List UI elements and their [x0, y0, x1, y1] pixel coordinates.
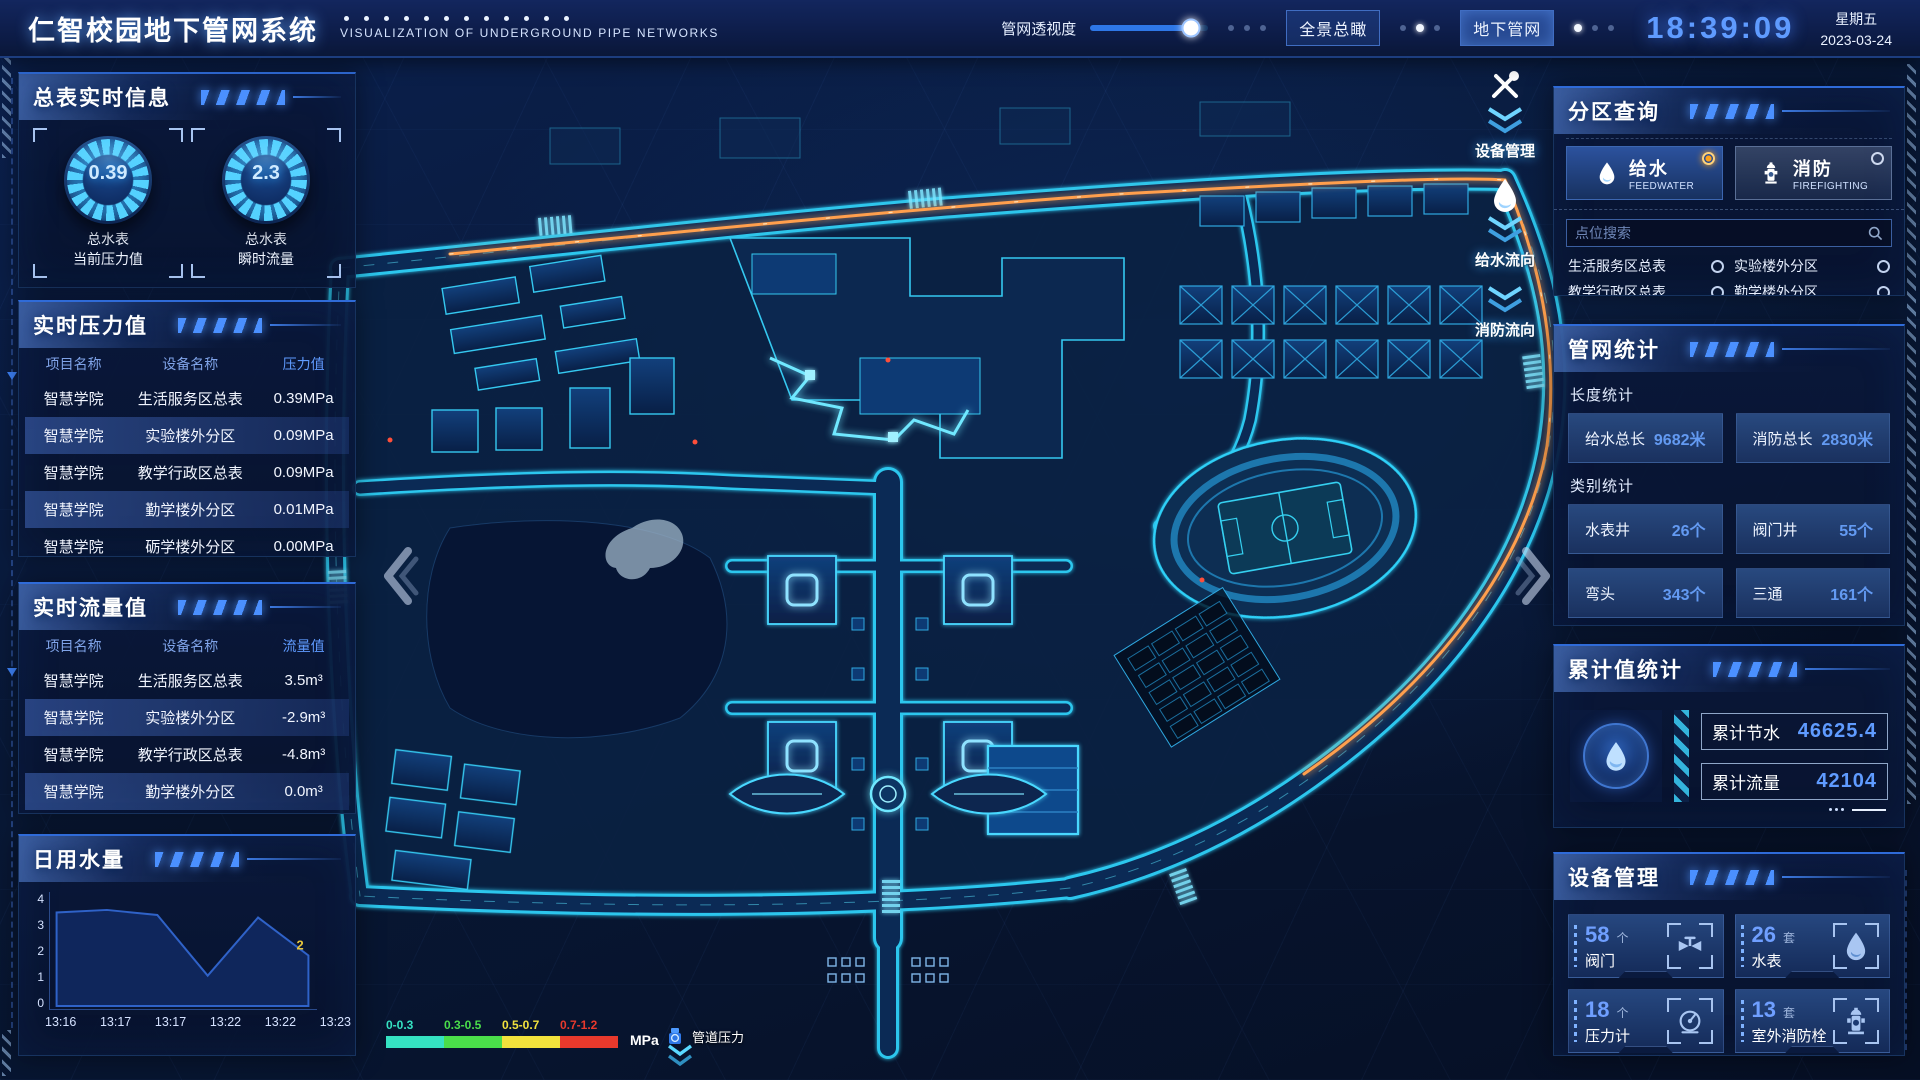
device-info: 13套室外消防栓 [1752, 997, 1827, 1046]
x-tick: 13:23 [320, 1015, 351, 1029]
y-tick: 2 [37, 944, 44, 958]
panel-title: 设备管理 [1568, 862, 1660, 892]
column-header: 设备名称 [122, 354, 258, 374]
tool-label: 设备管理 [1475, 140, 1535, 161]
slashes-decoration [178, 600, 262, 615]
device-unit: 套 [1783, 929, 1795, 946]
gauge-dial: 2.3 [222, 136, 310, 224]
y-tick: 4 [37, 892, 44, 906]
edge-marker [7, 668, 17, 676]
stat-box: 弯头343个 [1568, 568, 1723, 618]
device-count: 13 [1752, 997, 1776, 1023]
pressure-legend: 0-0.30.3-0.50.5-0.70.7-1.2MPa [386, 1018, 659, 1048]
map-next-arrow[interactable] [1514, 545, 1556, 607]
zone-list-item[interactable]: 教学行政区总表 [1568, 279, 1724, 296]
zone-label: 教学行政区总表 [1568, 282, 1666, 296]
stat-value: 343个 [1663, 581, 1706, 605]
device-unit: 套 [1783, 1004, 1795, 1021]
device-card-阀门[interactable]: 58个阀门 [1568, 914, 1724, 978]
outdoor-hydrant-icon [1833, 998, 1879, 1044]
zone-label: 生活服务区总表 [1568, 256, 1666, 276]
table-cell: 3.5m³ [258, 672, 349, 689]
campus-map-svg [300, 58, 1570, 1080]
length-stats-label: 长度统计 [1554, 372, 1904, 413]
table-row[interactable]: 智慧学院教学行政区总表0.09MPa [25, 454, 349, 491]
stat-box: 消防总长2830米 [1736, 413, 1891, 463]
panel-daily-usage: 日用水量 43210 2 13:1613:1713:1713:2213:2213… [18, 834, 356, 1056]
gauge-row: 0.39 总水表当前压力值 2.3 总水表瞬时流量 [19, 120, 355, 278]
app-subtitle-block: VISUALIZATION OF UNDERGROUND PIPE NETWOR… [340, 16, 719, 40]
chart-plot-area: 2 [49, 892, 317, 1010]
legend-range: 0-0.3 [386, 1018, 444, 1048]
panel-title-bar: 实时流量值 [19, 584, 355, 630]
device-count: 58 [1585, 922, 1609, 948]
chart-y-axis: 43210 [29, 892, 49, 1010]
legend-label: 0.7-1.2 [560, 1018, 618, 1032]
pressure-gauge-icon [1667, 998, 1713, 1044]
table-cell: 智慧学院 [25, 744, 122, 765]
table-cell: 生活服务区总表 [122, 388, 258, 409]
table-cell: 实验楼外分区 [122, 425, 258, 446]
stat-label: 水表井 [1585, 519, 1630, 540]
y-tick: 3 [37, 918, 44, 932]
radio-unselected-icon [1871, 152, 1884, 165]
overview-button[interactable]: 全景总瞰 [1286, 10, 1380, 46]
campus-map-3d[interactable] [300, 58, 1570, 1080]
slashes-decoration [1690, 104, 1774, 119]
panel-title-bar: 总表实时信息 [19, 74, 355, 120]
table-row[interactable]: 智慧学院砺学楼外分区0.00MPa [25, 528, 349, 557]
water-drop-badge [1583, 723, 1649, 789]
legend-swatch [444, 1036, 502, 1048]
gauge-dial: 0.39 [64, 136, 152, 224]
stat-value: 55个 [1839, 517, 1873, 541]
chevron-down-icon [1485, 107, 1525, 137]
x-tick: 13:22 [210, 1015, 241, 1029]
tool-fire-flow[interactable]: 消防流向 [1475, 286, 1535, 340]
device-count: 26 [1752, 922, 1776, 948]
edge-hatch-right [1907, 64, 1916, 804]
panel-title: 日用水量 [33, 844, 125, 874]
panel-title-bar: 累计值统计 [1554, 646, 1904, 692]
water-meter-icon [1833, 923, 1879, 969]
y-tick: 0 [37, 996, 44, 1010]
tool-device-management[interactable]: 设备管理 [1475, 66, 1535, 161]
dot-separator [1574, 24, 1614, 32]
table-cell: 智慧学院 [25, 425, 122, 446]
pipe-pressure-label: 管道压力 [692, 1027, 744, 1046]
edge-track-left [11, 78, 13, 1028]
table-cell: 智慧学院 [25, 462, 122, 483]
table-cell: -4.8m³ [258, 746, 349, 763]
table-cell: -2.9m³ [258, 709, 349, 726]
stat-box: 给水总长9682米 [1568, 413, 1723, 463]
cumulative-stats: 累计节水 46625.4 累计流量 42104 [1701, 713, 1888, 800]
stat-value: 161个 [1830, 581, 1873, 605]
legend-swatch [386, 1036, 444, 1048]
edge-track-right [1905, 870, 1907, 1050]
cumulative-row: 累计节水 46625.4 累计流量 42104 [1554, 692, 1904, 802]
dashboard: 设备管理 给水流向 消防流向 0-0.30.3-0.50.5-0.70.7-1.… [0, 0, 1920, 1080]
x-tick: 13:22 [265, 1015, 296, 1029]
clock-date: 星期五 2023-03-24 [1820, 9, 1892, 48]
stat-label: 阀门井 [1753, 519, 1798, 540]
table-row[interactable]: 智慧学院砺学楼外分区2.3m³ [25, 810, 349, 814]
cumulative-flow: 累计流量 42104 [1701, 763, 1888, 800]
slashes-decoration [178, 318, 262, 333]
table-header-row: 项目名称设备名称压力值 [25, 348, 349, 380]
device-unit: 个 [1616, 1004, 1628, 1021]
panel-title: 实时压力值 [33, 310, 148, 340]
radio-icon [1877, 260, 1890, 273]
chevron-down-icon [1485, 286, 1525, 316]
table-cell: 勤学楼外分区 [122, 499, 258, 520]
panel-pipe-stats: 管网统计 长度统计 给水总长9682米消防总长2830米 类别统计 水表井26个… [1553, 324, 1905, 626]
x-tick: 13:16 [45, 1015, 76, 1029]
valve-icon [1667, 923, 1713, 969]
stat-value: 26个 [1672, 517, 1706, 541]
water-drop-icon [1603, 740, 1629, 772]
panel-title-bar: 管网统计 [1554, 326, 1904, 372]
edge-hatch-bottom-left [2, 1030, 11, 1076]
panel-title-bar: 日用水量 [19, 836, 355, 882]
opacity-slider[interactable] [1090, 25, 1208, 31]
gauge-pressure: 0.39 总水表当前压力值 [33, 128, 183, 278]
stat-label: 消防总长 [1753, 428, 1813, 449]
weekday: 星期五 [1835, 9, 1877, 29]
table-cell: 智慧学院 [25, 707, 122, 728]
device-unit: 个 [1616, 929, 1628, 946]
app-subtitle: VISUALIZATION OF UNDERGROUND PIPE NETWOR… [340, 26, 719, 40]
device-card-压力计[interactable]: 18个压力计 [1568, 989, 1724, 1053]
tab-feedwater[interactable]: 给水FEEDWATER [1566, 146, 1723, 200]
legend-range: 0.3-0.5 [444, 1018, 502, 1048]
panel-title-bar: 分区查询 [1554, 88, 1904, 134]
device-countline: 58个 [1585, 922, 1629, 948]
y-tick: 1 [37, 970, 44, 984]
panel-realtime-pressure: 实时压力值 项目名称设备名称压力值智慧学院生活服务区总表0.39MPa智慧学院实… [18, 300, 356, 557]
column-header: 设备名称 [122, 636, 258, 656]
gauge-label: 总水表当前压力值 [73, 230, 143, 269]
radio-icon [1877, 286, 1890, 297]
table-cell: 0.00MPa [258, 538, 349, 555]
legend-label: 0-0.3 [386, 1018, 444, 1032]
legend-chevron-down-icon[interactable] [666, 1044, 694, 1070]
water-saving-icon-box [1570, 710, 1662, 802]
panel-title: 管网统计 [1568, 334, 1660, 364]
zone-list: 生活服务区总表实验楼外分区教学行政区总表勤学楼外分区砺学楼外分区宿舍区泵房 [1554, 253, 1904, 296]
edge-marker [7, 372, 17, 380]
chevron-down-icon [1485, 216, 1525, 246]
device-info: 26套水表 [1752, 922, 1796, 971]
legend-range: 0.5-0.7 [502, 1018, 560, 1048]
table-row[interactable]: 智慧学院生活服务区总表0.39MPa [25, 380, 349, 417]
pipe-pressure-meter: 管道压力 [666, 1026, 744, 1046]
radio-icon [1711, 286, 1724, 297]
device-label: 压力计 [1585, 1025, 1630, 1046]
panel-title: 总表实时信息 [33, 82, 171, 112]
cumulative-water-saved: 累计节水 46625.4 [1701, 713, 1888, 750]
category-stats: 水表井26个阀门井55个弯头343个三通161个 [1554, 504, 1904, 626]
daily-usage-chart: 43210 2 [19, 882, 355, 1010]
table-cell: 实验楼外分区 [122, 707, 258, 728]
app-title: 仁智校园地下管网系统 [28, 9, 318, 48]
tool-feedwater-flow[interactable]: 给水流向 [1475, 177, 1535, 270]
gauge-value: 0.39 [64, 162, 152, 185]
tab-firefighting[interactable]: 消防FIREFIGHTING [1735, 146, 1892, 200]
panel-realtime-flow: 实时流量值 项目名称设备名称流量值智慧学院生活服务区总表3.5m³智慧学院实验楼… [18, 582, 356, 814]
device-cards: 58个阀门26套水表18个压力计13套室外消防栓 [1554, 900, 1904, 1053]
hatch-divider [1674, 710, 1689, 802]
map-prev-arrow[interactable] [378, 545, 420, 607]
table-cell: 智慧学院 [25, 670, 122, 691]
panel-deco [1554, 802, 1904, 811]
column-header: 流量值 [258, 636, 349, 656]
dot-separator [1228, 25, 1266, 31]
panel-title: 分区查询 [1568, 96, 1660, 126]
pipe-pressure-icon [666, 1026, 684, 1046]
zone-list-item[interactable]: 勤学楼外分区 [1734, 279, 1890, 296]
panel-cumulative: 累计值统计 累计节水 46625.4 累计流量 [1553, 644, 1905, 828]
table-cell: 智慧学院 [25, 499, 122, 520]
tool-label: 消防流向 [1475, 319, 1535, 340]
panel-realtime-info: 总表实时信息 0.39 总水表当前压力值 2.3 总水表瞬时流量 [18, 72, 356, 288]
fire-hydrant-icon [1759, 161, 1783, 185]
zone-list-item[interactable]: 生活服务区总表 [1568, 253, 1724, 279]
svg-text:2: 2 [297, 938, 304, 953]
stat-box: 阀门井55个 [1736, 504, 1891, 554]
x-tick: 13:17 [155, 1015, 186, 1029]
table-row[interactable]: 智慧学院教学行政区总表-4.8m³ [25, 736, 349, 773]
table-cell: 0.0m³ [258, 783, 349, 800]
slashes-decoration [201, 90, 285, 105]
stat-box: 三通161个 [1736, 568, 1891, 618]
table-header-row: 项目名称设备名称流量值 [25, 630, 349, 662]
panel-zone-query: 分区查询 给水FEEDWATER 消防FIREFIGHTING [1553, 86, 1905, 296]
tool-label: 给水流向 [1475, 249, 1535, 270]
panel-title: 累计值统计 [1568, 654, 1683, 684]
zone-label: 勤学楼外分区 [1734, 282, 1818, 296]
table-cell: 0.09MPa [258, 427, 349, 444]
device-label: 水表 [1752, 950, 1796, 971]
legend-label: 0.3-0.5 [444, 1018, 502, 1032]
legend-unit: MPa [630, 1032, 659, 1048]
legend-swatch [502, 1036, 560, 1048]
table-cell: 智慧学院 [25, 388, 122, 409]
radio-icon [1711, 260, 1724, 273]
category-stats-label: 类别统计 [1554, 463, 1904, 504]
table-cell: 智慧学院 [25, 781, 122, 802]
search-input[interactable] [1575, 225, 1862, 241]
search-box [1566, 219, 1892, 247]
slashes-decoration [1713, 662, 1797, 677]
device-info: 58个阀门 [1585, 922, 1629, 971]
legend-range: 0.7-1.2 [560, 1018, 618, 1048]
opacity-slider-thumb[interactable] [1181, 19, 1200, 38]
device-countline: 26套 [1752, 922, 1796, 948]
device-label: 阀门 [1585, 950, 1629, 971]
table-cell: 0.09MPa [258, 464, 349, 481]
table-cell: 勤学楼外分区 [122, 781, 258, 802]
panel-title: 实时流量值 [33, 592, 148, 622]
x-tick: 13:17 [100, 1015, 131, 1029]
table-cell: 智慧学院 [25, 536, 122, 557]
gauge-flow: 2.3 总水表瞬时流量 [191, 128, 341, 278]
title-dots [340, 16, 719, 21]
dot-separator [1400, 24, 1440, 32]
table-cell: 砺学楼外分区 [122, 536, 258, 557]
stat-value: 2830米 [1821, 426, 1873, 450]
tools-icon [1486, 66, 1524, 104]
legend-label: 0.5-0.7 [502, 1018, 560, 1032]
table-cell: 生活服务区总表 [122, 670, 258, 691]
water-drop-icon [1490, 177, 1520, 213]
opacity-slider-label: 管网透视度 [1001, 18, 1076, 39]
stat-label: 弯头 [1585, 583, 1615, 604]
device-card-水表[interactable]: 26套水表 [1735, 914, 1891, 978]
panel-device-management: 设备管理 58个阀门26套水表18个压力计13套室外消防栓 [1553, 852, 1905, 1056]
table-cell: 0.01MPa [258, 501, 349, 518]
column-header: 压力值 [258, 354, 349, 374]
zone-label: 实验楼外分区 [1734, 256, 1818, 276]
radio-selected-icon [1702, 152, 1715, 165]
slashes-decoration [1690, 342, 1774, 357]
pressure-table: 项目名称设备名称压力值智慧学院生活服务区总表0.39MPa智慧学院实验楼外分区0… [19, 348, 355, 557]
table-cell: 0.39MPa [258, 390, 349, 407]
stat-box: 水表井26个 [1568, 504, 1723, 554]
stat-value: 9682米 [1654, 426, 1706, 450]
device-countline: 18个 [1585, 997, 1630, 1023]
zone-tabs: 给水FEEDWATER 消防FIREFIGHTING [1554, 136, 1904, 210]
zone-list-item[interactable]: 实验楼外分区 [1734, 253, 1890, 279]
device-label: 室外消防栓 [1752, 1025, 1827, 1046]
clock-time: 18:39:09 [1646, 10, 1794, 46]
column-header: 项目名称 [25, 636, 122, 656]
gauge-value: 2.3 [222, 162, 310, 185]
table-row[interactable]: 智慧学院勤学楼外分区0.0m³ [25, 773, 349, 810]
map-toolbar: 设备管理 给水流向 消防流向 [1455, 66, 1555, 340]
flow-table: 项目名称设备名称流量值智慧学院生活服务区总表3.5m³智慧学院实验楼外分区-2.… [19, 630, 355, 814]
table-cell: 教学行政区总表 [122, 462, 258, 483]
stat-label: 给水总长 [1585, 428, 1645, 449]
legend-swatch [560, 1036, 618, 1048]
underground-pipes-button[interactable]: 地下管网 [1460, 10, 1554, 46]
table-row[interactable]: 智慧学院实验楼外分区0.09MPa [25, 417, 349, 454]
stat-label: 三通 [1753, 583, 1783, 604]
gauge-label: 总水表瞬时流量 [238, 230, 294, 269]
panel-title-bar: 设备管理 [1554, 854, 1904, 900]
water-drop-icon [1595, 161, 1619, 185]
search-icon[interactable] [1868, 226, 1883, 241]
device-countline: 13套 [1752, 997, 1827, 1023]
panel-title-bar: 实时压力值 [19, 302, 355, 348]
table-row[interactable]: 智慧学院生活服务区总表3.5m³ [25, 662, 349, 699]
date: 2023-03-24 [1820, 32, 1892, 48]
device-count: 18 [1585, 997, 1609, 1023]
table-row[interactable]: 智慧学院勤学楼外分区0.01MPa [25, 491, 349, 528]
slashes-decoration [155, 852, 239, 867]
device-info: 18个压力计 [1585, 997, 1630, 1046]
table-cell: 教学行政区总表 [122, 744, 258, 765]
table-row[interactable]: 智慧学院实验楼外分区-2.9m³ [25, 699, 349, 736]
top-header: 仁智校园地下管网系统 VISUALIZATION OF UNDERGROUND … [0, 0, 1920, 58]
length-stats: 给水总长9682米消防总长2830米 [1554, 413, 1904, 463]
column-header: 项目名称 [25, 354, 122, 374]
device-card-室外消防栓[interactable]: 13套室外消防栓 [1735, 989, 1891, 1053]
slashes-decoration [1690, 870, 1774, 885]
chart-x-axis: 13:1613:1713:1713:2213:2213:23 [19, 1010, 355, 1029]
